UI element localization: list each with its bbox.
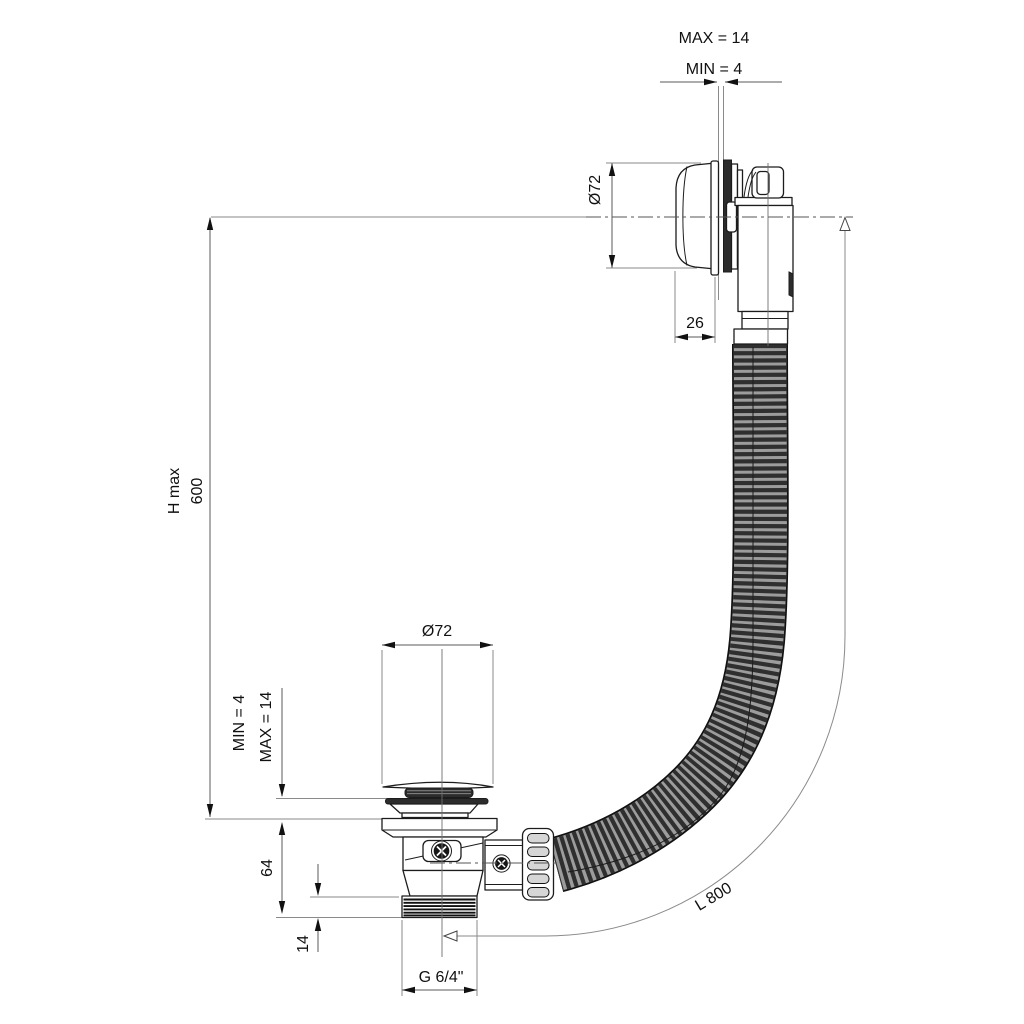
overflow-elbow-body <box>738 206 793 312</box>
dim-label-body-height: 64 <box>259 859 276 877</box>
technical-drawing: MAX = 14 MIN = 4 Ø72 26 H max 600 MIN = … <box>0 0 1024 1024</box>
dim-label-panel-max: MAX = 14 <box>679 30 750 47</box>
dim-label-cap-depth: 26 <box>686 315 704 332</box>
hose-length-arrow-top <box>840 218 850 231</box>
overflow-cap <box>676 163 715 269</box>
elbow-neck <box>742 312 788 330</box>
plug-rings <box>405 788 473 798</box>
drawing-canvas: MAX = 14 MIN = 4 Ø72 26 H max 600 MIN = … <box>0 0 1024 1024</box>
hose-nut-flutes <box>528 834 550 898</box>
dim-label-floor-min: MIN = 4 <box>231 695 248 752</box>
waste-assembly <box>382 782 554 917</box>
hose-collar-top <box>734 329 788 344</box>
hose-length-arrow-bottom <box>444 931 457 941</box>
overflow-rosette <box>711 161 719 275</box>
dim-label-hose-length: L 800 <box>692 880 735 915</box>
flexible-hose <box>556 344 761 872</box>
waste-flange <box>382 819 497 838</box>
dim-label-waste-diameter: Ø72 <box>422 623 452 640</box>
elbow-clip <box>789 272 793 297</box>
dim-label-h-max: H max <box>166 468 183 514</box>
dim-label-overflow-diameter: Ø72 <box>587 175 604 205</box>
overflow-body-shoulder <box>735 198 792 206</box>
dim-label-h-value: 600 <box>189 478 206 505</box>
dim-label-thread-spec: G 6/4" <box>419 969 464 986</box>
plug-seal <box>386 799 489 805</box>
dim-label-floor-max: MAX = 14 <box>258 692 275 763</box>
dim-label-panel-min: MIN = 4 <box>686 61 743 78</box>
dim-label-thread-length: 14 <box>295 935 312 953</box>
